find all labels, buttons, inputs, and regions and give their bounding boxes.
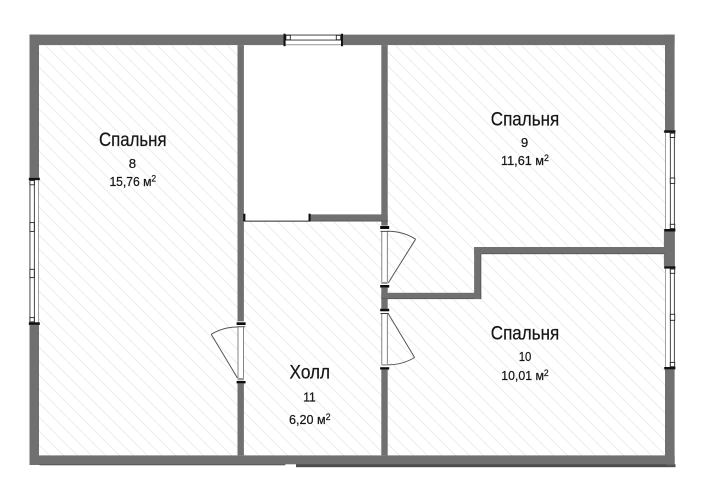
svg-text:Спальня: Спальня [491,109,559,130]
svg-text:Спальня: Спальня [99,130,167,151]
svg-text:6,20 м2: 6,20 м2 [289,412,331,427]
svg-text:8: 8 [129,156,136,171]
svg-text:15,76 м2: 15,76 м2 [109,174,156,189]
svg-text:10: 10 [519,349,532,364]
svg-text:11,61 м2: 11,61 м2 [501,153,549,168]
svg-text:Спальня: Спальня [491,324,559,345]
svg-text:Холл: Холл [290,363,331,384]
svg-text:9: 9 [521,135,528,150]
svg-text:10,01 м2: 10,01 м2 [501,368,549,383]
svg-text:11: 11 [303,390,316,405]
